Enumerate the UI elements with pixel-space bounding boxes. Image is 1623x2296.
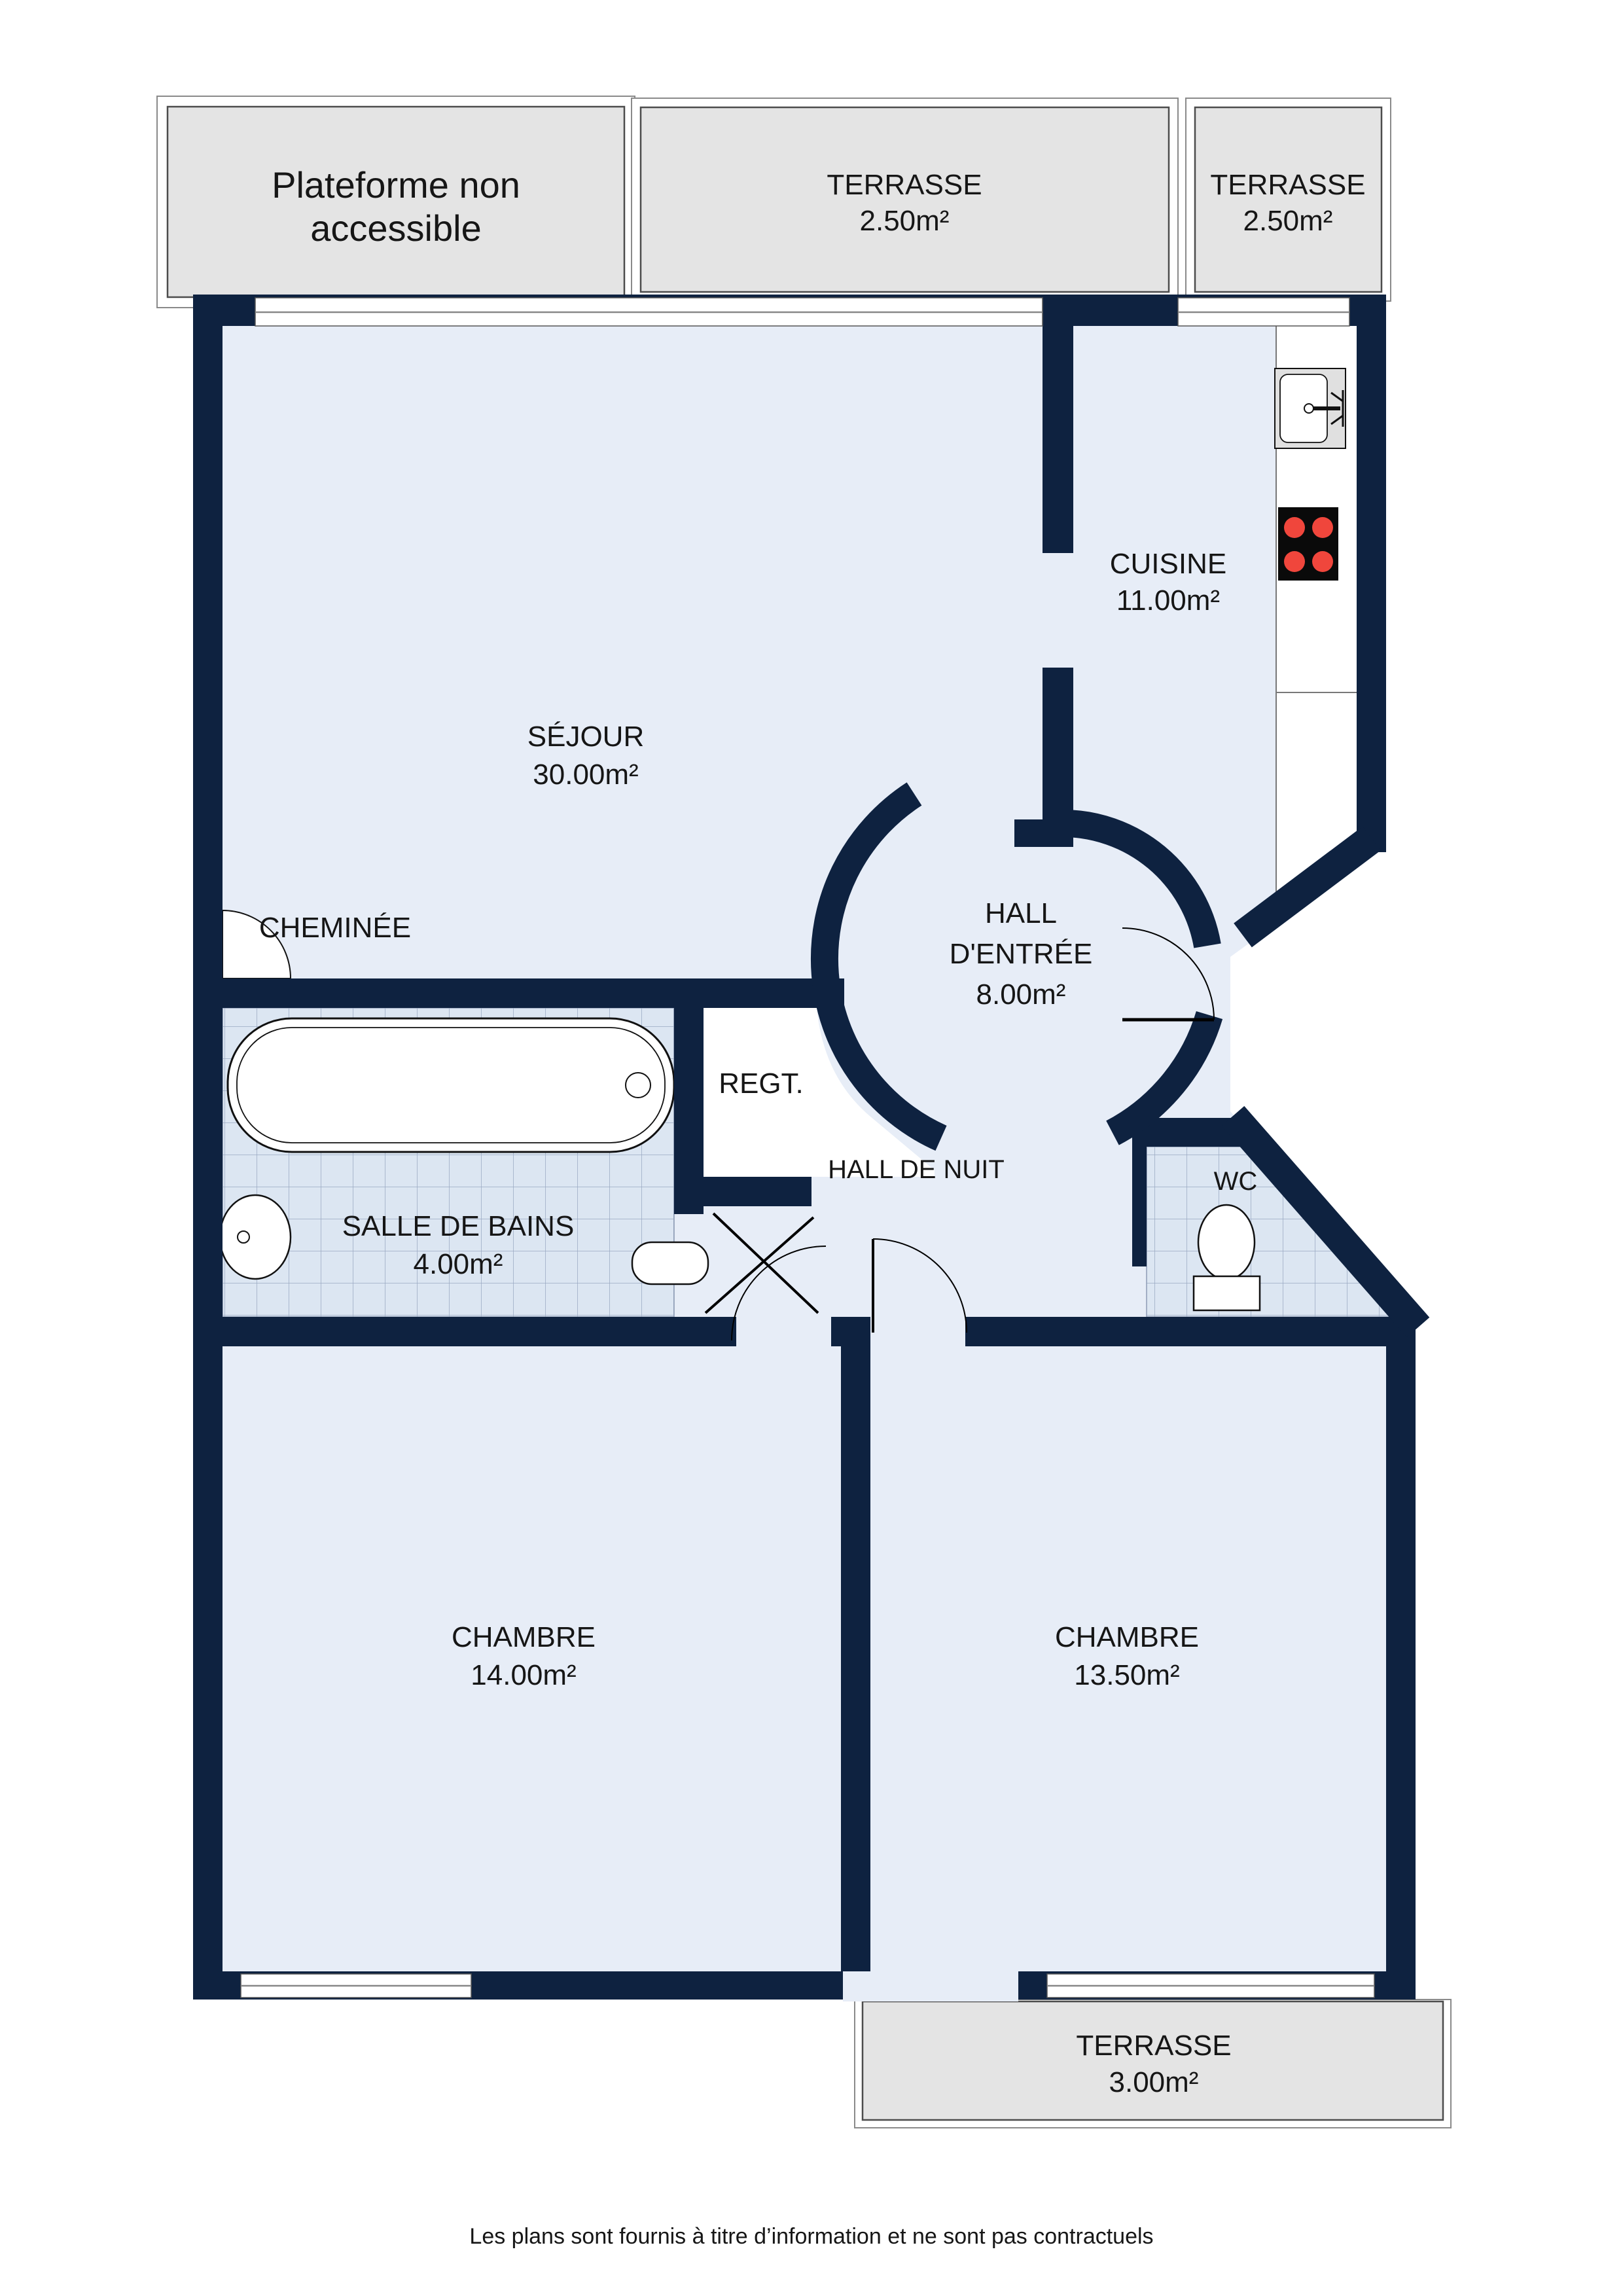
- floor-plan-page: Plateforme non accessible TERRASSE 2.50m…: [0, 0, 1623, 2296]
- washbasin-icon: [220, 1195, 291, 1279]
- label-cuisine-name: CUISINE: [1110, 548, 1226, 580]
- wall-sejour-cuisine-lower: [1043, 668, 1073, 819]
- terrace-top1-area: 2.50m²: [860, 205, 950, 237]
- label-hall-entree-line2: D'ENTRÉE: [950, 938, 1093, 970]
- washbasin-drain: [238, 1231, 249, 1243]
- terrace-bottom-name: TERRASSE: [1076, 2030, 1231, 2062]
- label-regt: REGT.: [719, 1067, 804, 1100]
- wall-regt-bottom: [704, 1177, 811, 1206]
- wall-corridor-right: [965, 1317, 1416, 1346]
- stove-burner: [1284, 517, 1305, 538]
- note-box-plateforme: Plateforme non accessible: [157, 96, 635, 308]
- window-chambre1-bottom: [241, 1974, 471, 1998]
- terrace-top2-name: TERRASSE: [1210, 169, 1365, 201]
- bathtub-outer: [228, 1018, 674, 1152]
- washbasin-bowl: [220, 1195, 291, 1279]
- label-hall-de-nuit: HALL DE NUIT: [828, 1155, 1005, 1184]
- stove-4-burners-icon: [1278, 507, 1338, 581]
- wall-right-upper: [1357, 295, 1386, 852]
- label-chambre1-name: CHAMBRE: [452, 1621, 596, 1653]
- wall-corridor-left: [193, 1317, 736, 1346]
- kitchen-faucet-base: [1304, 404, 1313, 413]
- label-sejour-area: 30.00m²: [533, 759, 638, 791]
- wall-bedroom-divider: [841, 1346, 870, 1971]
- stove-burner: [1312, 551, 1333, 572]
- label-sdb-name: SALLE DE BAINS: [342, 1210, 575, 1242]
- terrace-top-2: TERRASSE 2.50m²: [1186, 98, 1391, 301]
- label-hall-entree-line1: HALL: [985, 897, 1057, 929]
- floor-plan-svg: Plateforme non accessible TERRASSE 2.50m…: [0, 0, 1623, 2296]
- label-wc: WC: [1214, 1167, 1258, 1196]
- wall-bathroom-right: [674, 1008, 704, 1214]
- window-chambre2-bottom: [1047, 1974, 1374, 1998]
- window-sejour-top: [255, 298, 1043, 326]
- toilet-bowl: [1198, 1205, 1255, 1280]
- label-sdb-area: 4.00m²: [414, 1248, 503, 1280]
- stove-burner: [1284, 551, 1305, 572]
- terrace-top1-name: TERRASSE: [827, 169, 982, 201]
- terrace-bottom-area: 3.00m²: [1109, 2066, 1199, 2098]
- toilet-icon: [1194, 1205, 1260, 1310]
- terrace-top-1: TERRASSE 2.50m²: [632, 98, 1178, 301]
- label-cheminee: CHEMINÉE: [259, 912, 411, 944]
- label-chambre2-area: 13.50m²: [1074, 1659, 1179, 1691]
- terrace-door-opening: [843, 1971, 1018, 2001]
- kitchen-sink-icon: [1275, 368, 1346, 448]
- wall-sejour-bathroom: [193, 978, 844, 1008]
- wall-wc-left: [1132, 1147, 1147, 1266]
- radiator-icon: [632, 1242, 708, 1284]
- wall-corridor-mid: [831, 1317, 870, 1346]
- label-sejour-name: SÉJOUR: [527, 721, 644, 753]
- label-cuisine-area: 11.00m²: [1116, 584, 1220, 617]
- wall-left: [193, 295, 223, 2000]
- footer-disclaimer: Les plans sont fournis à titre d’informa…: [469, 2224, 1153, 2249]
- terrace-bottom: TERRASSE 3.00m²: [855, 2000, 1451, 2128]
- label-chambre1-area: 14.00m²: [471, 1659, 576, 1691]
- stove-burner: [1312, 517, 1333, 538]
- note-line2: accessible: [310, 207, 481, 249]
- bathtub-icon: [228, 1018, 674, 1152]
- bathtub-drain: [626, 1073, 651, 1098]
- wall-right-lower: [1386, 1329, 1416, 2000]
- terrace-top2-area: 2.50m²: [1243, 205, 1333, 237]
- wall-sejour-cuisine-upper: [1043, 326, 1073, 553]
- label-chambre2-name: CHAMBRE: [1055, 1621, 1199, 1653]
- label-hall-entree-area: 8.00m²: [976, 978, 1066, 1011]
- window-cuisine-top: [1178, 298, 1349, 326]
- note-line1: Plateforme non: [272, 164, 520, 206]
- toilet-tank: [1194, 1276, 1260, 1310]
